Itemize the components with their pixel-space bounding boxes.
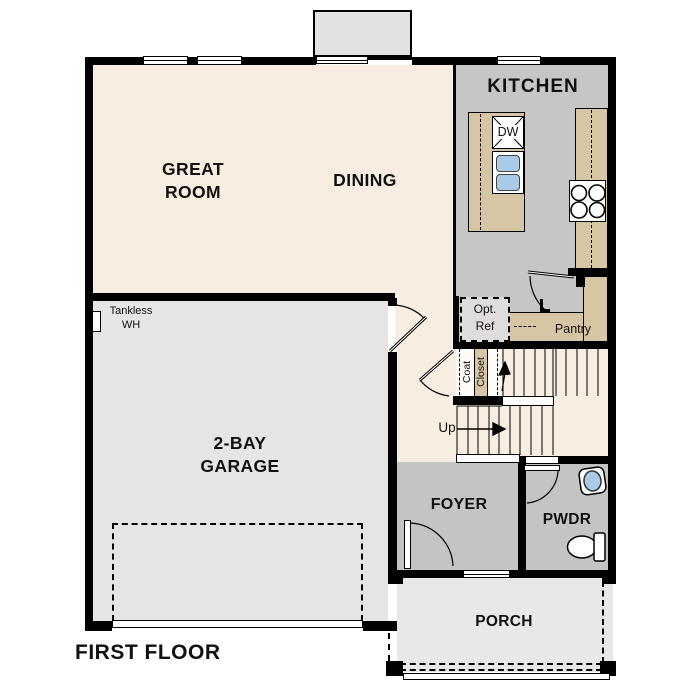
top-wall-segment: [242, 57, 316, 65]
bump-out-wall-line: [368, 57, 412, 60]
dining-label: DINING: [315, 169, 415, 192]
porch-dashed-bottom-inner: [400, 669, 602, 671]
porch-label: PORCH: [454, 613, 554, 631]
closet-dashed-line-left: [459, 349, 460, 395]
great-room-garage-wall: [85, 293, 395, 301]
porch-dashed-left: [388, 633, 390, 661]
stove: [569, 180, 606, 222]
top-wall-segment: [188, 57, 197, 65]
window: [316, 56, 368, 64]
kitchen-sink-basin-bottom: [496, 174, 520, 191]
garage-door-dashed-area: [112, 523, 363, 621]
window: [143, 56, 188, 65]
foyer-sidelite-window: [463, 570, 510, 578]
powder-label: PWDR: [517, 511, 617, 529]
garage-label: 2-BAY GARAGE: [180, 432, 300, 478]
porch-post-bottom-left: [386, 661, 403, 676]
porch-dashed-right: [602, 581, 604, 663]
foyer-label: FOYER: [409, 496, 509, 514]
bump-out: [313, 10, 412, 57]
closet-bottom-wall: [453, 396, 503, 405]
garage-bottom-wall-left: [85, 621, 112, 631]
tankless-wh-label: Tankless WH: [102, 304, 160, 332]
garage-bottom-wall-right: [363, 621, 397, 631]
powder-top-wall: [558, 456, 616, 464]
garage-right-wall-upper: [388, 298, 397, 306]
front-door-leaf: [404, 520, 411, 569]
right-wall: [608, 57, 616, 577]
top-wall-segment: [85, 57, 143, 65]
island-center-dashed-line: [480, 114, 481, 230]
stair-bottom-tread: [456, 454, 520, 463]
top-wall-segment: [541, 57, 616, 65]
window: [197, 56, 242, 65]
garage-door: [112, 620, 363, 628]
kitchen-label: KITCHEN: [483, 75, 583, 98]
powder-door-opening: [526, 456, 558, 464]
stair-landing: [502, 396, 554, 406]
foyer-floor: [397, 462, 518, 570]
garage-right-wall-lower: [388, 352, 397, 577]
left-wall: [85, 57, 93, 631]
opt-ref-label: Opt. Ref: [460, 301, 510, 335]
closet-dashed-line-right: [497, 349, 498, 395]
porch-dashed-bottom-outer: [400, 663, 602, 665]
floor-plan: GREAT ROOM DINING KITCHEN 2-BAY GARAGE F…: [0, 0, 687, 687]
opt-ref-side-wall: [453, 296, 459, 342]
pantry-door-stub: [576, 274, 585, 287]
powder-door-leaf: [524, 465, 560, 471]
window: [497, 56, 541, 65]
closet-label: Closet: [475, 347, 487, 397]
pantry-label: Pantry: [523, 322, 623, 336]
up-label: Up: [432, 420, 462, 435]
porch-post-top-left: [388, 570, 403, 584]
porch-step: [403, 673, 610, 680]
kitchen-sink-basin-top: [496, 155, 520, 172]
porch-post-top-right: [602, 570, 616, 584]
great-room-label: GREAT ROOM: [133, 158, 253, 204]
dishwasher-label: DW: [493, 125, 523, 139]
top-wall-segment: [412, 57, 497, 65]
coat-label: Coat: [461, 347, 473, 397]
plan-title: FIRST FLOOR: [75, 641, 221, 665]
